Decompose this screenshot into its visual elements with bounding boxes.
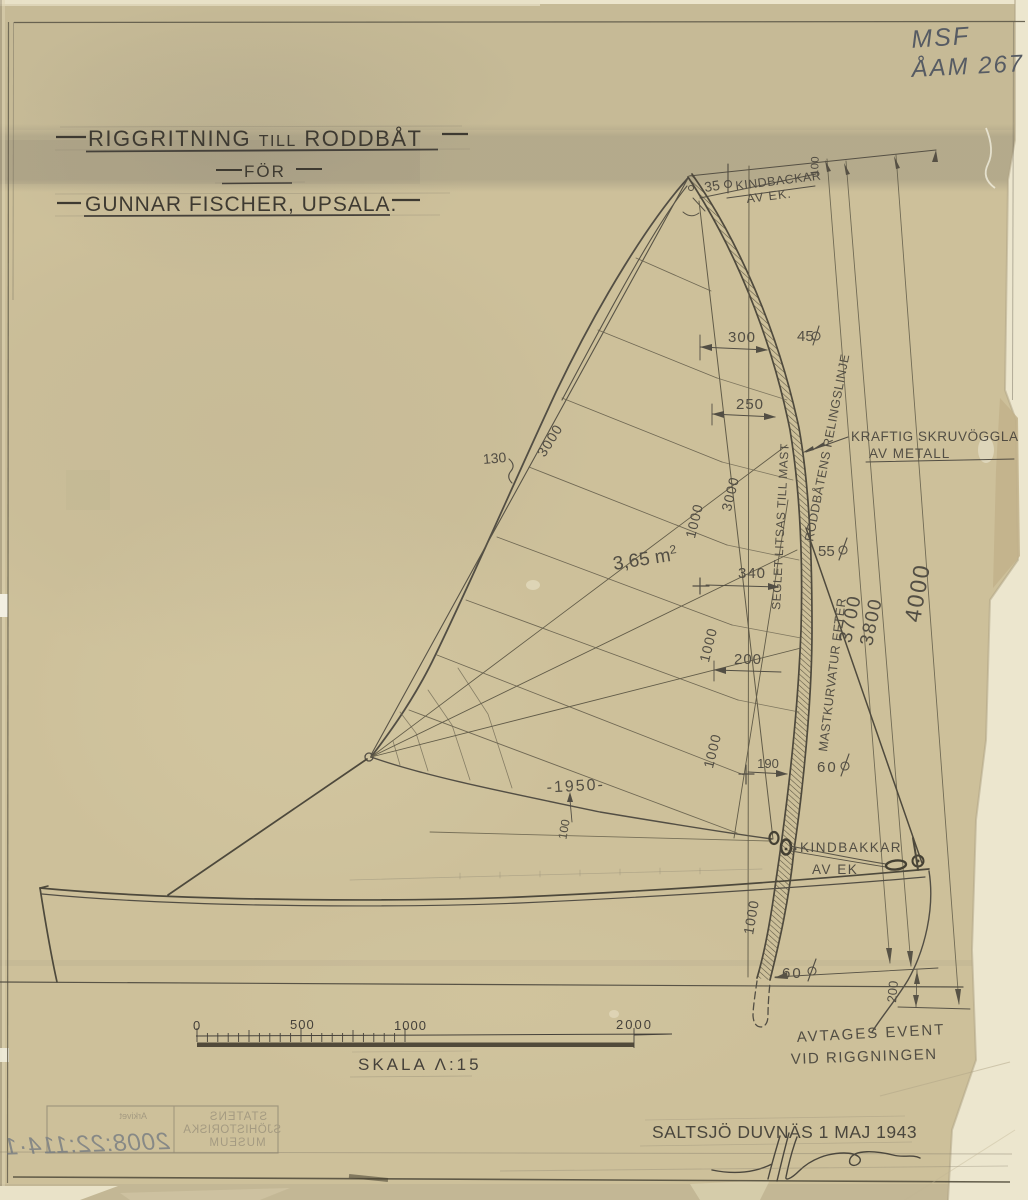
svg-text:FÖR: FÖR: [244, 162, 286, 181]
svg-text:1000: 1000: [394, 1018, 427, 1033]
svg-text:AV EK: AV EK: [812, 862, 858, 877]
svg-text:500: 500: [290, 1017, 315, 1032]
svg-text:300: 300: [728, 329, 756, 346]
svg-text:SKALA Λ:15: SKALA Λ:15: [358, 1055, 482, 1074]
svg-text:45: 45: [797, 328, 814, 345]
svg-text:200: 200: [884, 980, 901, 1003]
svg-text:MUSEUM: MUSEUM: [208, 1137, 265, 1149]
svg-text:250: 250: [736, 396, 764, 413]
svg-text:GUNNAR FISCHER, UPSALA.: GUNNAR FISCHER, UPSALA.: [85, 193, 397, 216]
svg-text:60: 60: [817, 759, 838, 776]
svg-text:340: 340: [738, 565, 766, 582]
svg-text:SALTSJÖ DUVNÄS 1 MAJ 1943: SALTSJÖ DUVNÄS 1 MAJ 1943: [652, 1122, 917, 1142]
svg-text:MSF: MSF: [910, 22, 971, 54]
svg-text:35: 35: [703, 177, 721, 195]
svg-text:2000: 2000: [616, 1017, 653, 1032]
svg-text:200: 200: [734, 651, 762, 668]
svg-text:STATENS: STATENS: [209, 1111, 267, 1123]
svg-text:190: 190: [757, 756, 779, 771]
svg-text:RIGGRITNING TILL RODDBÅT: RIGGRITNING TILL RODDBÅT: [88, 126, 422, 151]
svg-text:AV METALL: AV METALL: [869, 446, 950, 461]
svg-text:130: 130: [482, 449, 507, 467]
svg-text:-1950-: -1950-: [546, 776, 605, 796]
svg-text:KINDBAKKAR: KINDBAKKAR: [800, 840, 902, 855]
svg-text:0: 0: [193, 1018, 200, 1033]
svg-text:SJÖHISTORISKA: SJÖHISTORISKA: [183, 1124, 281, 1136]
svg-text:KRAFTIG SKRUVÖGGLA: KRAFTIG SKRUVÖGGLA: [851, 429, 1019, 444]
svg-text:55: 55: [818, 543, 835, 560]
svg-text:Arkivet: Arkivet: [119, 1111, 147, 1121]
